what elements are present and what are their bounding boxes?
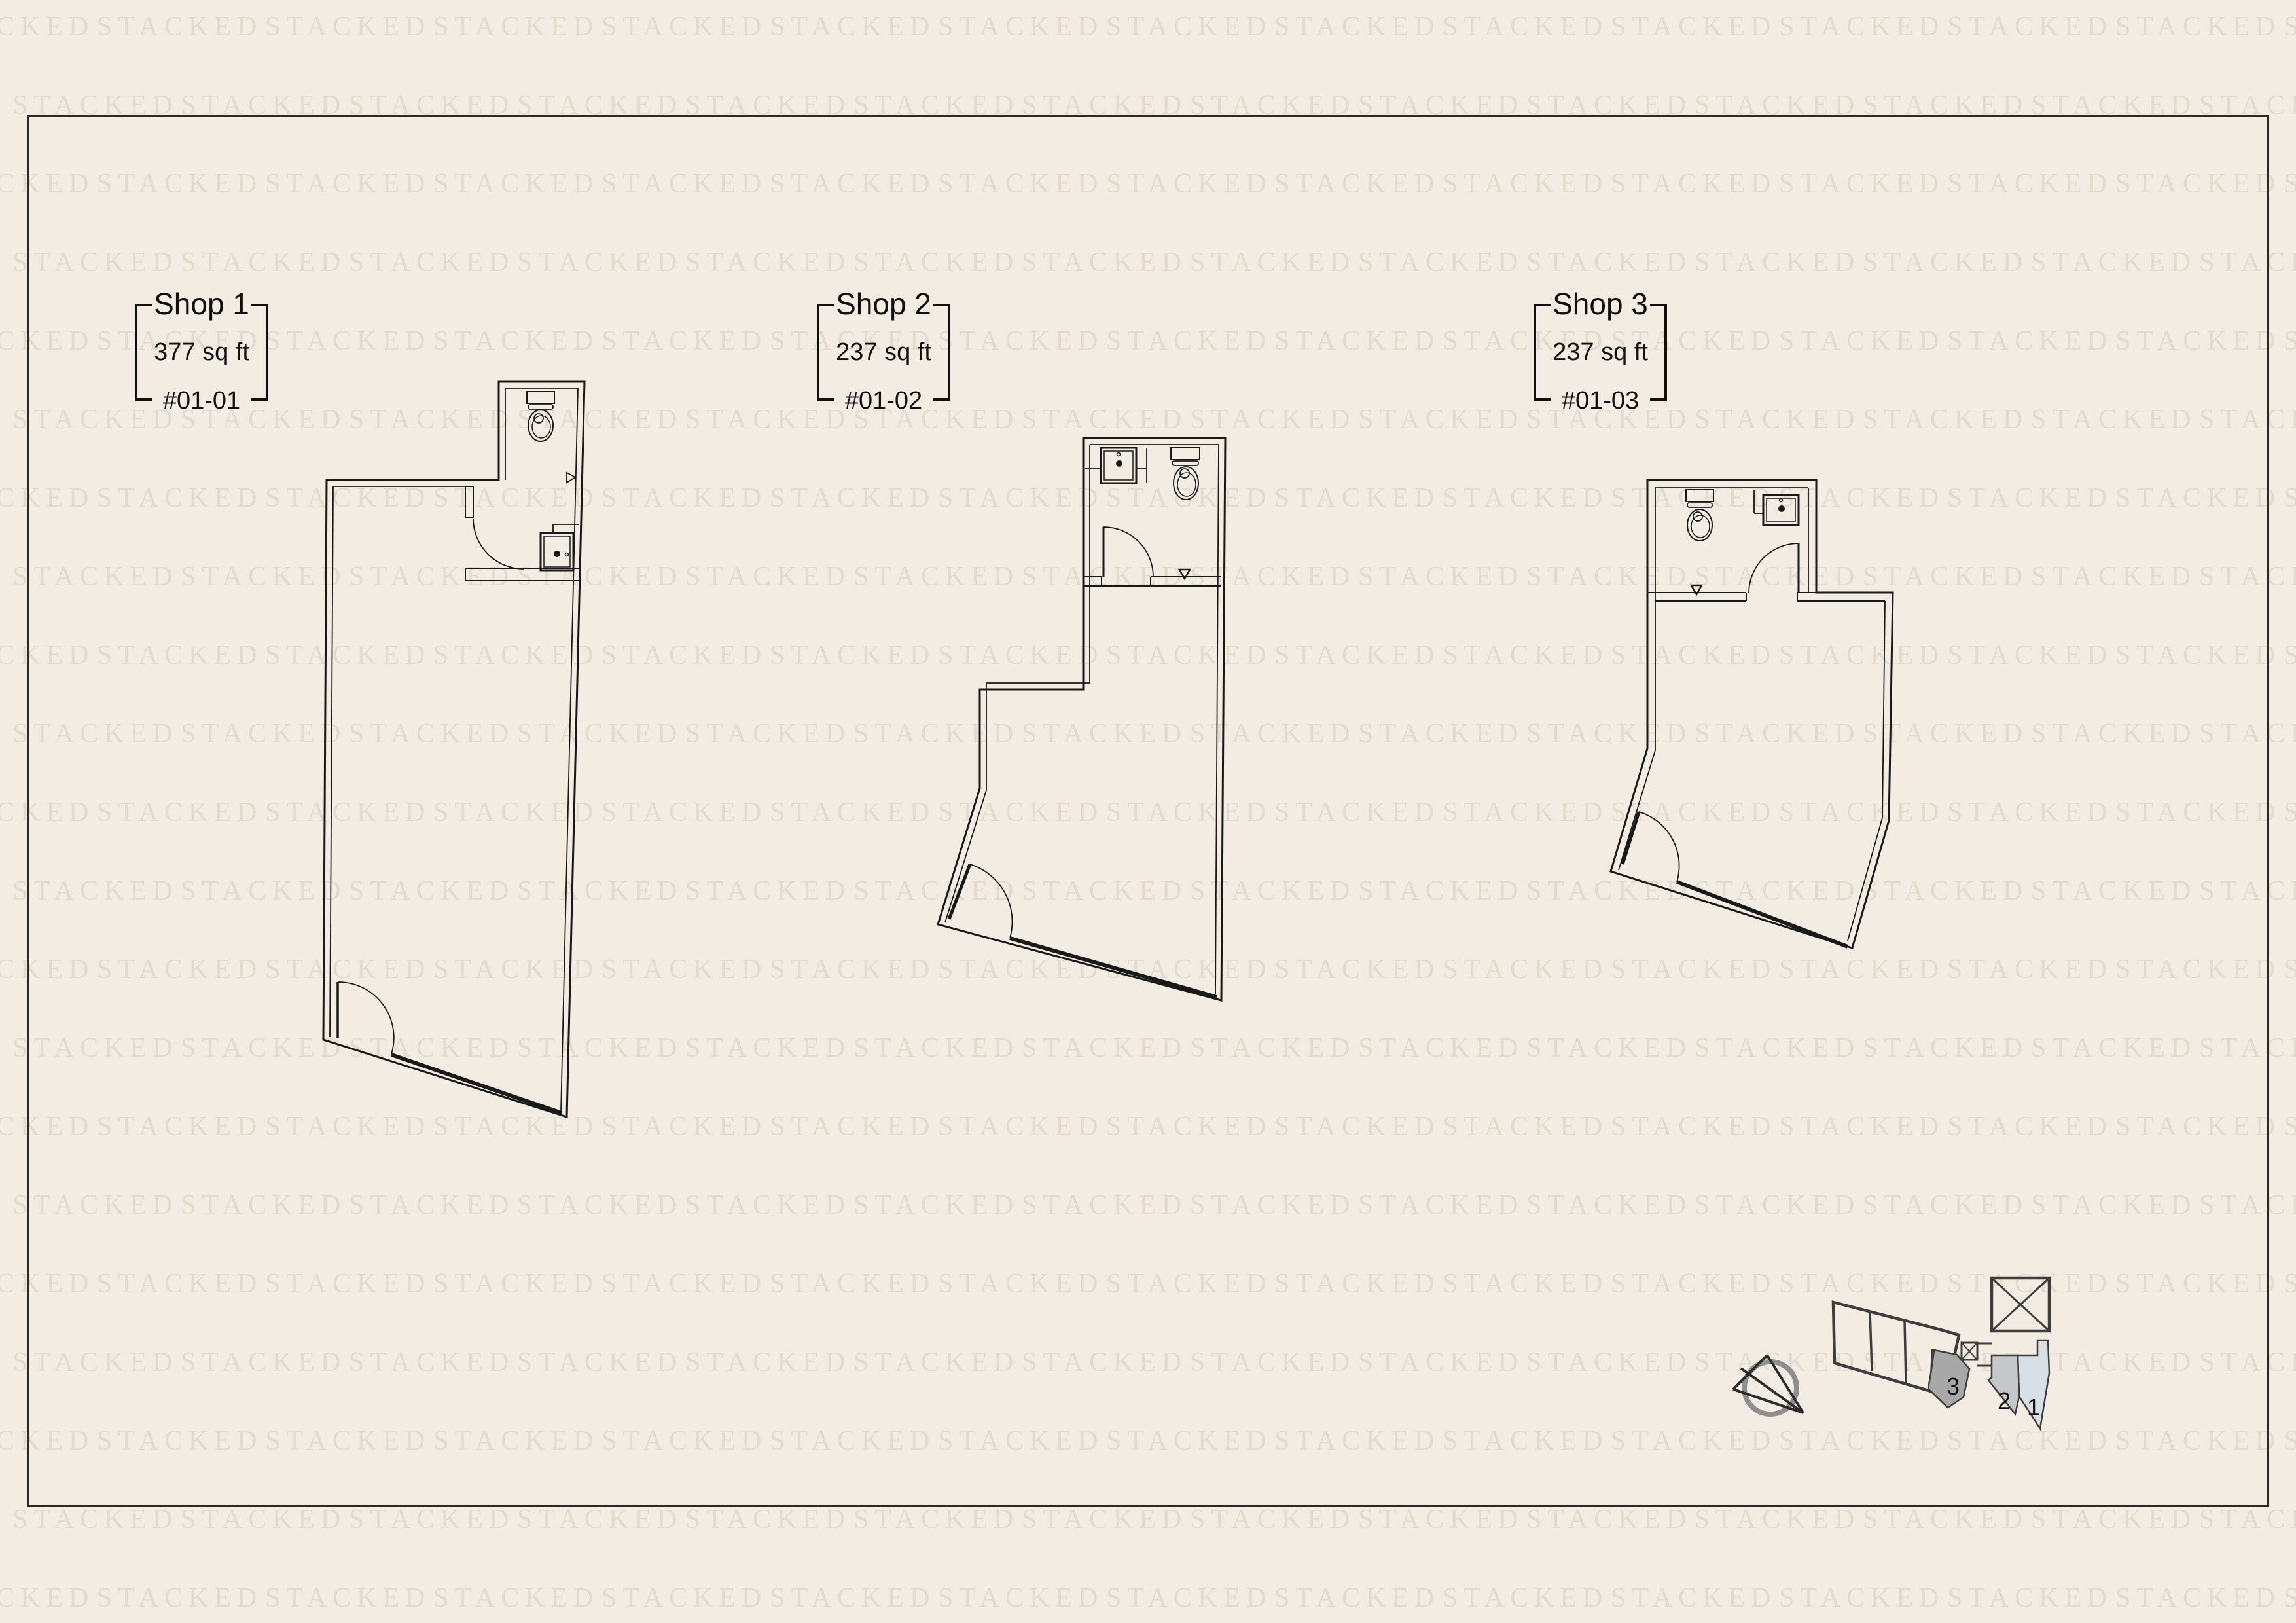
watermark-text: STACKED: [265, 1584, 431, 1612]
watermark-text: STACKED: [2284, 1113, 2296, 1140]
watermark-text: STACKED: [12, 1506, 178, 1533]
watermark-text: STACKED: [601, 1584, 767, 1612]
watermark-text: STACKED: [770, 13, 935, 41]
floor-plan-shop-1: [314, 360, 596, 1185]
watermark-text: STACKED: [181, 1506, 346, 1533]
floor-plan-shop-2: [929, 429, 1237, 1012]
watermark-text: STACKED: [1611, 1584, 1776, 1612]
unit-number: #01-03: [1534, 388, 1667, 414]
storefront-line: [391, 1055, 562, 1113]
watermark-text: STACKED: [685, 1506, 851, 1533]
watermark-text: STACKED: [433, 1584, 599, 1612]
watermark-text: STACKED: [1443, 13, 1608, 41]
watermark-text: STACKED: [1779, 1584, 1945, 1612]
unit-name: Shop 2: [817, 287, 950, 321]
key-plan-label-2: 2: [1998, 1387, 2011, 1414]
watermark-text: STACKED: [97, 13, 262, 41]
toilet-icon: [1171, 447, 1200, 500]
watermark-text: STACKED: [2284, 642, 2296, 669]
toilet-icon: [527, 392, 554, 441]
entrance-door: [338, 982, 394, 1054]
watermark-text: STACKED: [2199, 1506, 2296, 1533]
watermark-text: STACKED: [938, 1584, 1103, 1612]
unit-label-shop-1: Shop 1 377 sq ft #01-01: [135, 304, 268, 401]
walls: [323, 382, 584, 1117]
watermark-text: STACKED: [938, 13, 1103, 41]
north-arrow-icon: [1733, 1355, 1803, 1414]
floor-plan-shop-3: [1600, 468, 1901, 959]
watermark-text: STACKED: [1443, 1584, 1608, 1612]
watermark-text: STACKED: [1695, 1506, 1860, 1533]
floor-plan-sheet: STACKEDSTACKEDSTACKEDSTACKEDSTACKEDSTACK…: [0, 0, 2296, 1623]
walls: [938, 438, 1225, 1000]
watermark-text: STACKED: [770, 1584, 935, 1612]
entrance-door: [949, 864, 1013, 938]
storefront-line: [1677, 882, 1848, 947]
bathroom-door: [1749, 543, 1799, 593]
watermark-text: STACKED: [2284, 13, 2296, 41]
watermark-text: STACKED: [1358, 1506, 1524, 1533]
watermark-text: STACKED: [2284, 1584, 2296, 1612]
vent-triangle-icon: [567, 473, 575, 483]
watermark-text: STACKED: [1274, 13, 1440, 41]
bathroom-door: [473, 519, 524, 569]
walls: [1611, 480, 1893, 948]
watermark-text: STACKED: [1106, 13, 1272, 41]
watermark-text: STACKED: [2284, 170, 2296, 198]
watermark-text: STACKED: [517, 1506, 683, 1533]
watermark-text: STACKED: [1947, 13, 2113, 41]
watermark-text: STACKED: [0, 1584, 94, 1612]
watermark-text: STACKED: [1022, 1506, 1187, 1533]
unit-name: Shop 1: [135, 287, 268, 321]
watermark-text: STACKED: [853, 1506, 1019, 1533]
unit-area: 377 sq ft: [135, 339, 268, 365]
sink-icon: [1101, 448, 1136, 483]
entrance-door: [1623, 812, 1679, 882]
storefront-line: [1010, 938, 1217, 997]
watermark-text: STACKED: [1611, 13, 1776, 41]
stair-core-crossed-box-icon: [1992, 1278, 2049, 1331]
watermark-text: STACKED: [1779, 13, 1945, 41]
watermark-text: STACKED: [265, 13, 431, 41]
watermark-text: STACKED: [601, 13, 767, 41]
watermark-text: STACKED: [433, 13, 599, 41]
watermark-text: STACKED: [2284, 484, 2296, 512]
key-plan-label-3: 3: [1946, 1373, 1960, 1400]
watermark-text: STACKED: [0, 13, 94, 41]
watermark-text: STACKED: [2284, 799, 2296, 826]
unit-number: #01-02: [817, 388, 950, 414]
watermark-text: STACKED: [1526, 1506, 1692, 1533]
watermark-text: STACKED: [2115, 13, 2281, 41]
lift-crossed-box-icon: [1962, 1343, 1992, 1366]
watermark-text: STACKED: [2284, 956, 2296, 983]
unit-area: 237 sq ft: [817, 339, 950, 365]
sink-icon: [541, 533, 573, 570]
watermark-text: STACKED: [2284, 1270, 2296, 1298]
watermark-text: STACKED: [349, 1506, 514, 1533]
unit-label-shop-3: Shop 3 237 sq ft #01-03: [1534, 304, 1667, 401]
toilet-icon: [1686, 490, 1713, 541]
unit-name: Shop 3: [1534, 287, 1667, 321]
watermark-text: STACKED: [97, 1584, 262, 1612]
key-plan-label-1: 1: [2027, 1394, 2040, 1421]
watermark-text: STACKED: [2115, 1584, 2281, 1612]
watermark-text: STACKED: [2284, 1427, 2296, 1455]
watermark-text: STACKED: [1190, 1506, 1355, 1533]
watermark-text: STACKED: [1947, 1584, 2113, 1612]
key-plan: 3 2 1: [1702, 1267, 2094, 1444]
watermark-text: STACKED: [2031, 1506, 2197, 1533]
watermark-text: STACKED: [1863, 1506, 2028, 1533]
bathroom-door: [1103, 527, 1153, 577]
watermark-text: STACKED: [1274, 1584, 1440, 1612]
watermark-text: STACKED: [2284, 327, 2296, 355]
unit-label-shop-2: Shop 2 237 sq ft #01-02: [817, 304, 950, 401]
unit-area: 237 sq ft: [1534, 339, 1667, 365]
unit-number: #01-01: [135, 388, 268, 414]
sink-icon: [1763, 495, 1799, 525]
watermark-text: STACKED: [1106, 1584, 1272, 1612]
